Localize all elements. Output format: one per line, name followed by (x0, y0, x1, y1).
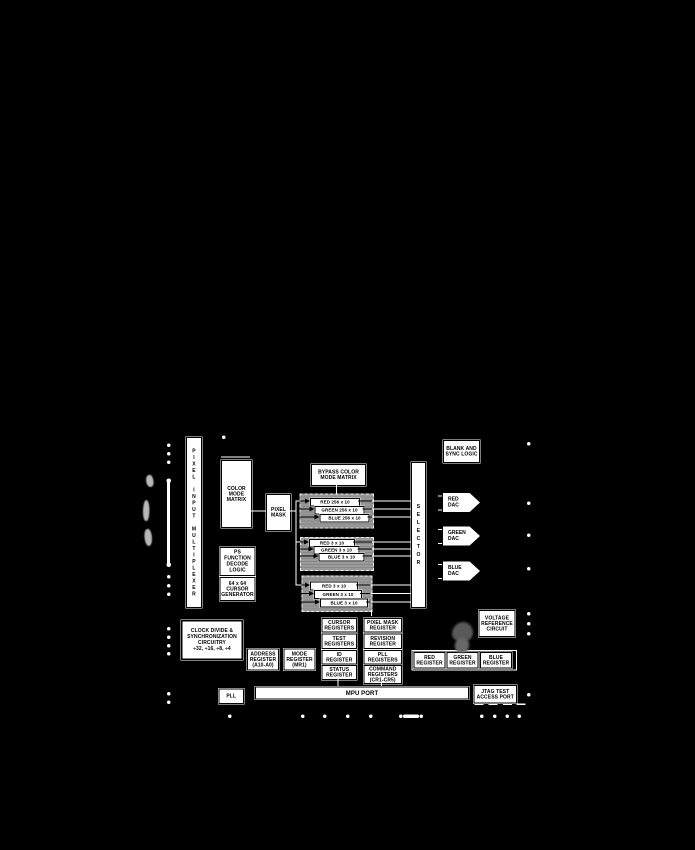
pixel-input-bus (167, 479, 170, 565)
connection-dot (167, 692, 171, 696)
connection-dot (527, 533, 531, 537)
connector-line (489, 704, 498, 706)
connector-line (372, 501, 411, 502)
red-dac-arrow: RED DAC (443, 493, 480, 512)
block-pixel-mask-register: PIXEL MASK REGISTER (364, 618, 403, 633)
scan-smudge (142, 500, 150, 521)
connection-dot (167, 452, 171, 456)
connector-line (338, 678, 339, 687)
connection-dot (346, 714, 350, 718)
connector-line (438, 543, 442, 544)
connection-dot (505, 714, 509, 718)
connector-line (438, 578, 442, 579)
connection-dot (517, 714, 521, 718)
block-cursor-registers: CURSOR REGISTERS (322, 618, 358, 633)
connection-dot (167, 584, 171, 588)
block-pll-registers: PLL REGISTERS (364, 650, 403, 665)
connection-dot (527, 501, 531, 505)
connection-dot (167, 700, 171, 704)
palette-wire (302, 602, 316, 603)
arrowhead-icon (310, 507, 315, 512)
palette-wire (363, 509, 373, 510)
connector-line (372, 517, 411, 518)
diagram-page: P I X E L I N P U T M U L T I P L E X E … (0, 0, 695, 850)
block-color-mode-matrix: COLOR MODE MATRIX (221, 460, 252, 528)
connection-dot (323, 714, 327, 718)
connection-dot (369, 714, 373, 718)
connector-line (371, 610, 372, 616)
connection-dot (222, 435, 226, 439)
block-mpu-port: MPU PORT (255, 687, 469, 700)
block-diagram: P I X E L I N P U T M U L T I P L E X E … (0, 0, 695, 850)
palette-register: BLUE 3 x 10 (319, 553, 365, 562)
connector-line (372, 556, 411, 557)
block-cursor-generator: 64 x 64 CURSOR GENERATOR (220, 577, 256, 601)
connection-dot (480, 714, 484, 718)
arrowhead-icon (304, 540, 309, 545)
connector-line (438, 496, 442, 497)
connection-dot (527, 622, 531, 626)
block-pixel-mask: PIXEL MASK (266, 494, 291, 531)
arrowhead-icon (305, 499, 310, 504)
connector-line (371, 585, 412, 586)
block-jtag-test-access-port: JTAG TEST ACCESS PORT (474, 685, 518, 704)
connection-dot (527, 632, 531, 636)
connection-dot (228, 714, 232, 718)
palette-wire (360, 593, 371, 594)
block-command-registers: COMMAND REGISTERS (CR1-CR5) (364, 665, 403, 684)
connector-line (371, 593, 412, 594)
block-bypass-color-mode-matrix: BYPASS COLOR MODE MATRIX (311, 464, 366, 486)
connector-line (475, 704, 484, 706)
palette-wire (356, 585, 371, 586)
block-blank-and-sync-logic: BLANK AND SYNC LOGIC (443, 440, 480, 463)
palette-wire (358, 549, 373, 550)
palette-wire (300, 556, 314, 557)
palette-register: BLUE 256 x 10 (320, 514, 370, 523)
connector-line (372, 549, 411, 550)
block-test-registers: TEST REGISTERS (322, 634, 358, 650)
palette-wire (366, 602, 371, 603)
arrowhead-icon (315, 600, 320, 605)
arrowhead-icon (305, 583, 310, 588)
connector-line (438, 510, 442, 511)
connection-dot (527, 612, 531, 616)
palette-wire (300, 549, 309, 550)
block-clock-divide-sync: CLOCK DIVIDE & SYNCHRONIZATION CIRCUITRY… (181, 620, 243, 660)
block-green-register: GREEN REGISTER (447, 652, 479, 669)
connection-dot (527, 442, 531, 446)
connector-line (372, 542, 411, 543)
connection-dot (166, 562, 171, 567)
block-pll: PLL (219, 689, 245, 705)
connection-dot (166, 478, 171, 483)
scan-smudge (144, 474, 155, 488)
connector-line (336, 484, 337, 494)
connection-dot (399, 714, 403, 718)
connection-dot (419, 714, 423, 718)
connection-dot (167, 460, 171, 464)
connection-dot (527, 693, 531, 697)
connector-line (503, 704, 512, 706)
block-address-register: ADDRESS REGISTER (A10-A0) (247, 649, 279, 671)
block-selector: S E L E C T O R (411, 462, 426, 608)
connector-line (381, 682, 382, 687)
connector-line (517, 704, 526, 706)
block-revision-register: REVISION REGISTER (364, 634, 403, 650)
connection-dot (301, 714, 305, 718)
palette-wire (368, 517, 373, 518)
block-red-register: RED REGISTER (414, 652, 446, 669)
connector-line (250, 511, 266, 512)
blue-dac-arrow: BLUE DAC (443, 562, 480, 581)
arrowhead-icon (314, 554, 319, 559)
connector-line (296, 501, 297, 586)
arrowhead-icon (309, 591, 314, 596)
connection-dot (493, 714, 497, 718)
palette-wire (300, 517, 315, 518)
green-dac-arrow: GREEN DAC (443, 527, 480, 546)
block-id-register: ID REGISTER (322, 650, 358, 665)
scan-smudge (143, 528, 153, 546)
connector-line (372, 509, 411, 510)
block-pixel-input-multiplexer: P I X E L I N P U T M U L T I P L E X E … (186, 437, 202, 608)
connector-line (438, 529, 442, 530)
connector-line (221, 457, 250, 458)
connector-line (438, 564, 442, 565)
block-blue-register: BLUE REGISTER (480, 652, 512, 669)
connection-dot (167, 635, 171, 639)
palette-register: BLUE 3 x 10 (320, 599, 368, 608)
connection-dot (167, 575, 171, 579)
arrowhead-icon (309, 547, 314, 552)
palette-wire (358, 501, 372, 502)
block-ps-function-decode-logic: PS FUNCTION DECODE LOGIC (220, 547, 256, 576)
block-mode-register: MODE REGISTER (MR1) (284, 649, 316, 671)
arrowhead-icon (315, 515, 320, 520)
palette-wire (363, 556, 373, 557)
palette-wire (300, 509, 310, 510)
connection-dot (167, 644, 171, 648)
palette-wire (302, 593, 310, 594)
connection-dot (167, 652, 171, 656)
connection-dot (167, 443, 171, 447)
connector-line (371, 602, 412, 603)
connection-dot (527, 567, 531, 571)
connection-bar (403, 715, 419, 719)
palette-wire (353, 542, 372, 543)
connection-dot (167, 627, 171, 631)
connection-dot (167, 592, 171, 596)
block-voltage-reference-circuit: VOLTAGE REFERENCE CIRCUIT (479, 610, 516, 637)
block-status-register: STATUS REGISTER (322, 665, 358, 680)
